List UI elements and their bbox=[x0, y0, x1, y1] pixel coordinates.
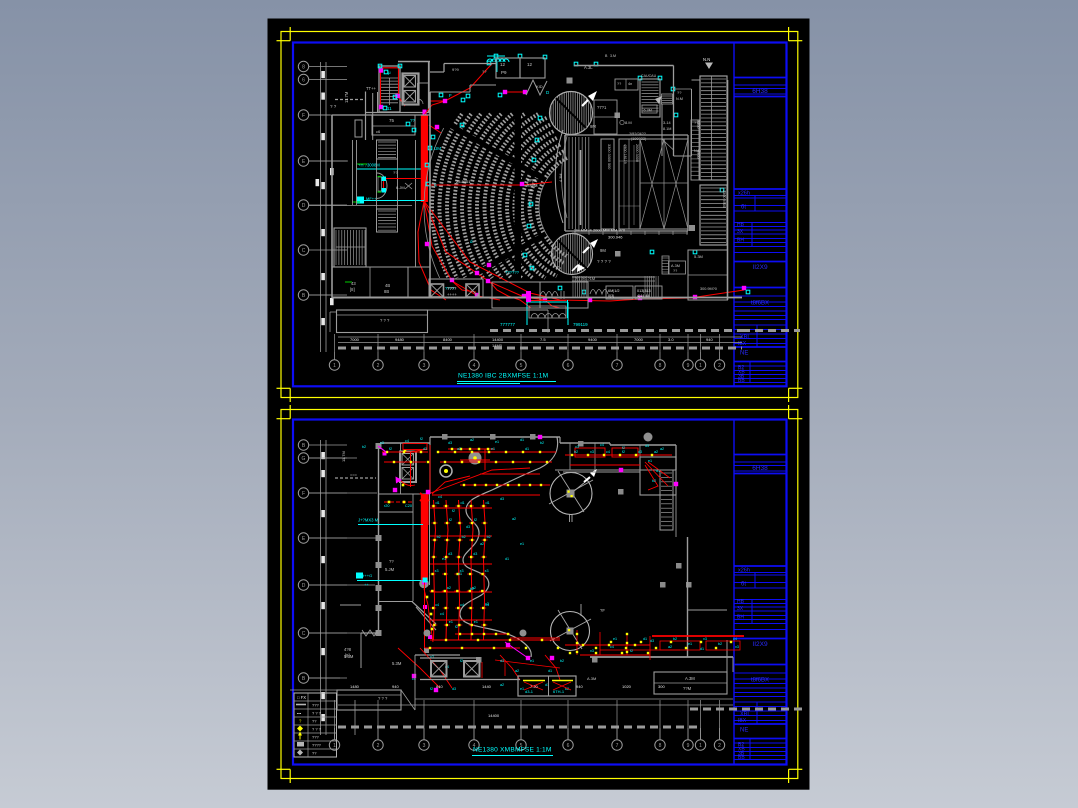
svg-text:4900 18119: 4900 18119 bbox=[623, 144, 627, 164]
svg-text:CAUCAU: CAUCAU bbox=[641, 74, 657, 78]
svg-text:5.3M: 5.3M bbox=[392, 661, 402, 666]
svg-text:a2: a2 bbox=[500, 683, 504, 687]
svg-text:t8f6BX: t8f6BX bbox=[751, 301, 769, 307]
svg-text:d1: d1 bbox=[548, 669, 552, 673]
svg-text:J+?MX3 M: J+?MX3 M bbox=[358, 518, 379, 523]
svg-text:BB: BB bbox=[738, 378, 745, 384]
svg-text:##: ## bbox=[528, 188, 533, 193]
svg-text:5.3M: 5.3M bbox=[694, 254, 703, 259]
svg-text:? ? ? ?.?1M: ? ? ? ?.?1M bbox=[575, 277, 595, 281]
svg-text:b2: b2 bbox=[652, 479, 656, 483]
svg-text:μ: μ bbox=[388, 70, 391, 75]
svg-text:f2: f2 bbox=[622, 446, 625, 450]
svg-text:b2: b2 bbox=[462, 535, 466, 539]
svg-text:d3-1: d3-1 bbox=[525, 689, 534, 694]
svg-text:x26h: x26h bbox=[738, 568, 750, 574]
svg-text:d3: d3 bbox=[500, 497, 504, 501]
svg-text:14400: 14400 bbox=[488, 713, 500, 718]
svg-text:9: 9 bbox=[687, 363, 690, 369]
svg-text:????: ???? bbox=[447, 286, 457, 291]
svg-text:BB: BB bbox=[738, 755, 745, 761]
svg-text:d3: d3 bbox=[448, 552, 452, 556]
svg-text:x3: x3 bbox=[590, 649, 594, 653]
svg-text:1: 1 bbox=[333, 743, 336, 749]
svg-text:A.3M: A.3M bbox=[587, 676, 596, 681]
svg-text:C: C bbox=[302, 248, 306, 254]
svg-text:c4: c4 bbox=[460, 603, 464, 607]
svg-text:5.3M: 5.3M bbox=[344, 654, 354, 659]
svg-text:9: 9 bbox=[687, 743, 690, 749]
svg-text:c4: c4 bbox=[435, 603, 439, 607]
svg-text:e1: e1 bbox=[442, 557, 446, 561]
svg-text:300: 300 bbox=[658, 684, 665, 689]
svg-text:3300 3300 500: 3300 3300 500 bbox=[607, 144, 611, 169]
svg-text:6H38: 6H38 bbox=[752, 88, 768, 95]
svg-text:F: F bbox=[302, 491, 305, 497]
svg-text:IBX: IBX bbox=[738, 718, 747, 724]
svg-text:f2: f2 bbox=[452, 509, 455, 513]
svg-text:9400: 9400 bbox=[588, 337, 598, 342]
svg-text:4.3M: 4.3M bbox=[559, 174, 563, 182]
svg-text:2: 2 bbox=[377, 743, 380, 749]
svg-text:b2: b2 bbox=[574, 450, 578, 454]
svg-text:x3: x3 bbox=[380, 441, 384, 445]
svg-text:6TH-1: 6TH-1 bbox=[553, 689, 565, 694]
svg-text:75: 75 bbox=[389, 118, 395, 123]
svg-text:e1: e1 bbox=[688, 642, 692, 646]
svg-text:6: 6 bbox=[302, 78, 305, 84]
svg-text:G: G bbox=[302, 456, 306, 462]
svg-text:????: ???? bbox=[312, 743, 322, 748]
svg-text:d3: d3 bbox=[638, 450, 642, 454]
svg-text:6: 6 bbox=[567, 743, 570, 749]
svg-text:F: F bbox=[302, 113, 305, 119]
svg-text:f2: f2 bbox=[455, 625, 458, 629]
svg-text:4|44 44: 4|44 44 bbox=[637, 294, 650, 298]
svg-text:e1: e1 bbox=[613, 637, 617, 641]
svg-text:d3: d3 bbox=[452, 687, 456, 691]
svg-text:? ? ?: ? ? ? bbox=[312, 711, 322, 716]
svg-text:d3: d3 bbox=[645, 444, 649, 448]
svg-text:6H38: 6H38 bbox=[752, 465, 768, 472]
svg-text:e1: e1 bbox=[474, 620, 478, 624]
svg-text:d1: d1 bbox=[436, 501, 440, 505]
svg-text:a2: a2 bbox=[512, 517, 516, 521]
svg-text:300.9M?0: 300.9M?0 bbox=[700, 287, 717, 291]
svg-text:1480: 1480 bbox=[350, 684, 360, 689]
svg-text:2: 2 bbox=[718, 743, 721, 749]
svg-text:A.3L: A.3L bbox=[584, 65, 593, 70]
svg-text:??????: ?????? bbox=[505, 270, 520, 275]
svg-text:NE1380 IBC 2BXMFSE 1:1M: NE1380 IBC 2BXMFSE 1:1M bbox=[458, 373, 548, 380]
svg-text:3: 3 bbox=[423, 363, 426, 369]
svg-text:f2: f2 bbox=[430, 687, 433, 691]
svg-text:? ?: ? ? bbox=[330, 104, 337, 109]
svg-text:d1: d1 bbox=[656, 469, 660, 473]
svg-text:e1: e1 bbox=[520, 542, 524, 546]
svg-text:d3: d3 bbox=[466, 525, 470, 529]
svg-text:3: 3 bbox=[423, 743, 426, 749]
svg-text:2: 2 bbox=[377, 363, 380, 369]
svg-text:A.3M: A.3M bbox=[671, 264, 680, 268]
svg-text:4?8: 4?8 bbox=[344, 647, 352, 652]
svg-text:D: D bbox=[302, 583, 306, 589]
svg-text:b2: b2 bbox=[470, 587, 474, 591]
svg-text:HB: HB bbox=[737, 599, 745, 605]
svg-text:C: C bbox=[302, 631, 306, 637]
svg-text:a2: a2 bbox=[515, 669, 519, 673]
svg-text:3-14: 3-14 bbox=[663, 121, 671, 125]
svg-text:b2: b2 bbox=[437, 535, 441, 539]
svg-text:6t: 6t bbox=[741, 582, 746, 588]
svg-text:7: 7 bbox=[616, 363, 619, 369]
svg-text:? ? ? ?: ? ? ? ? bbox=[597, 259, 611, 264]
svg-text:8: 8 bbox=[302, 65, 305, 71]
svg-text:1: 1 bbox=[333, 363, 336, 369]
svg-text:14M0: 14M0 bbox=[492, 343, 503, 348]
svg-text:HB: HB bbox=[737, 222, 745, 228]
svg-text:e1: e1 bbox=[648, 459, 652, 463]
svg-text:23.8001: 23.8001 bbox=[456, 179, 471, 184]
svg-text:===: === bbox=[350, 472, 358, 477]
svg-text:1: 1 bbox=[699, 363, 702, 369]
svg-text:d1: d1 bbox=[520, 438, 524, 442]
svg-text:? ? ?: ? ? ? bbox=[380, 318, 390, 323]
svg-text:t8f6BX: t8f6BX bbox=[751, 678, 769, 684]
svg-text:9M: 9M bbox=[600, 248, 606, 253]
svg-text:12: 12 bbox=[500, 62, 506, 67]
svg-text:43: 43 bbox=[351, 281, 356, 286]
svg-text:f2: f2 bbox=[389, 447, 392, 451]
svg-text:b2: b2 bbox=[673, 637, 677, 641]
svg-text:d1: d1 bbox=[458, 572, 462, 576]
svg-text:6: 6 bbox=[567, 363, 570, 369]
svg-text:x3: x3 bbox=[575, 445, 579, 449]
svg-text:0|3|: 0|3| bbox=[608, 294, 614, 298]
svg-text:d1: d1 bbox=[486, 501, 490, 505]
svg-text:3.M: 3.M bbox=[610, 54, 616, 58]
svg-text:d1: d1 bbox=[643, 637, 647, 641]
svg-text:x3: x3 bbox=[485, 569, 489, 573]
svg-text:P9: P9 bbox=[501, 70, 507, 75]
svg-text:9M: 9M bbox=[590, 124, 596, 129]
svg-text:d3: d3 bbox=[448, 441, 452, 445]
svg-text:8B: 8B bbox=[384, 289, 389, 294]
svg-text:7.20: 7.20 bbox=[530, 684, 539, 689]
svg-text:14400: 14400 bbox=[492, 337, 504, 342]
svg-text:4B: 4B bbox=[385, 283, 390, 288]
svg-text:??M: ??M bbox=[683, 686, 692, 691]
svg-text:e1: e1 bbox=[495, 440, 499, 444]
svg-text:940: 940 bbox=[706, 337, 713, 342]
svg-text:1440: 1440 bbox=[482, 684, 492, 689]
svg-text:799119: 799119 bbox=[573, 322, 588, 327]
svg-text:3300 4900: 3300 4900 bbox=[722, 190, 726, 208]
svg-text:5.JM: 5.JM bbox=[385, 567, 395, 572]
svg-text:6t: 6t bbox=[741, 205, 746, 211]
svg-text:? ? ?: ? ? ? bbox=[312, 727, 322, 732]
svg-text:??: ?? bbox=[677, 90, 682, 95]
svg-text:d3: d3 bbox=[500, 659, 504, 663]
svg-text:3X: 3X bbox=[737, 229, 744, 235]
svg-text:940: 940 bbox=[576, 684, 583, 689]
svg-text:d3: d3 bbox=[650, 639, 654, 643]
svg-text:F: F bbox=[449, 93, 452, 98]
svg-text:12: 12 bbox=[527, 62, 533, 67]
svg-text:300.946: 300.946 bbox=[608, 235, 623, 240]
svg-text:7: 7 bbox=[616, 743, 619, 749]
svg-text:c4: c4 bbox=[438, 495, 442, 499]
svg-text:6.3M: 6.3M bbox=[644, 109, 652, 113]
svg-text:11.7M: 11.7M bbox=[344, 91, 349, 103]
svg-text:f2: f2 bbox=[420, 437, 423, 441]
svg-text:8: 8 bbox=[659, 743, 662, 749]
svg-text:c4: c4 bbox=[610, 645, 614, 649]
svg-text:c4: c4 bbox=[405, 439, 409, 443]
svg-text:C20: C20 bbox=[405, 504, 412, 508]
svg-text:IBX: IBX bbox=[738, 341, 747, 347]
svg-text:II2X9: II2X9 bbox=[752, 264, 768, 271]
svg-text:? ? ?: ? ? ? bbox=[378, 696, 388, 701]
svg-text:8.1M: 8.1M bbox=[663, 127, 671, 131]
svg-text:9480: 9480 bbox=[395, 337, 405, 342]
svg-text:f2: f2 bbox=[474, 518, 477, 522]
svg-text:NE: NE bbox=[740, 351, 748, 357]
svg-text:N.N: N.N bbox=[703, 57, 710, 62]
svg-text:11.7M: 11.7M bbox=[341, 451, 346, 462]
svg-text:4900: 4900 bbox=[696, 150, 700, 158]
svg-text:c4: c4 bbox=[606, 450, 610, 454]
svg-text:4n: 4n bbox=[628, 82, 632, 86]
svg-text:4: 4 bbox=[473, 363, 476, 369]
svg-text:1: 1 bbox=[699, 743, 702, 749]
svg-text:8: 8 bbox=[659, 363, 662, 369]
svg-text:KID: KID bbox=[536, 84, 543, 89]
svg-text:d3: d3 bbox=[473, 552, 477, 556]
svg-text:b2: b2 bbox=[362, 445, 366, 449]
svg-text:?F: ?F bbox=[600, 608, 605, 613]
svg-text:c4: c4 bbox=[440, 612, 444, 616]
svg-text:x26h: x26h bbox=[738, 191, 750, 197]
svg-text:b2: b2 bbox=[560, 659, 564, 663]
svg-text:NE1380 XMBMFSE 1:1M: NE1380 XMBMFSE 1:1M bbox=[473, 747, 552, 754]
svg-text:??: ?? bbox=[312, 751, 317, 756]
svg-text:940: 940 bbox=[392, 684, 399, 689]
svg-text:[8]: [8] bbox=[350, 287, 355, 292]
svg-text:d1: d1 bbox=[505, 557, 509, 561]
svg-text:□ FX: □ FX bbox=[297, 695, 306, 700]
svg-text:2: 2 bbox=[718, 363, 721, 369]
svg-text:???: ??? bbox=[312, 735, 319, 740]
svg-text:f2: f2 bbox=[460, 659, 463, 663]
svg-text:x3: x3 bbox=[590, 450, 594, 454]
svg-text:11: 11 bbox=[387, 106, 392, 111]
svg-text:6.JM: 6.JM bbox=[396, 185, 405, 190]
svg-text:013|313: 013|313 bbox=[637, 289, 651, 293]
svg-text:a2: a2 bbox=[447, 586, 451, 590]
svg-text:??: ?? bbox=[393, 170, 398, 175]
svg-text:r20: r20 bbox=[384, 504, 390, 508]
svg-text:BH: BH bbox=[737, 615, 744, 621]
svg-text:3.0: 3.0 bbox=[668, 337, 674, 342]
svg-text:a2: a2 bbox=[668, 645, 672, 649]
svg-text:a2: a2 bbox=[480, 542, 484, 546]
svg-text:x3: x3 bbox=[485, 602, 489, 606]
svg-text:840: 840 bbox=[436, 684, 443, 689]
svg-text:d1: d1 bbox=[461, 501, 465, 505]
svg-text:d3: d3 bbox=[423, 447, 427, 451]
svg-text:a2: a2 bbox=[654, 450, 658, 454]
svg-text:c4: c4 bbox=[733, 637, 737, 641]
svg-text:e1: e1 bbox=[491, 447, 495, 451]
svg-text:a2: a2 bbox=[660, 447, 664, 451]
svg-text:7000: 7000 bbox=[350, 337, 360, 342]
svg-text:e1: e1 bbox=[449, 620, 453, 624]
svg-text:D: D bbox=[302, 203, 306, 209]
svg-text:a2: a2 bbox=[470, 438, 474, 442]
svg-text:XBL: XBL bbox=[740, 712, 750, 718]
svg-text:f2: f2 bbox=[630, 649, 633, 653]
svg-text:7.5: 7.5 bbox=[540, 337, 546, 342]
svg-text:??: ?? bbox=[673, 269, 677, 273]
svg-text:d1: d1 bbox=[525, 447, 529, 451]
svg-text:c4: c4 bbox=[600, 443, 604, 447]
svg-text:7000: 7000 bbox=[634, 337, 644, 342]
svg-text:x3: x3 bbox=[735, 645, 739, 649]
svg-text:++: ++ bbox=[364, 582, 369, 587]
svg-text:777777: 777777 bbox=[500, 322, 516, 327]
svg-text:MF++: MF++ bbox=[366, 196, 377, 201]
svg-text:•••: ••• bbox=[297, 711, 302, 716]
svg-text:NE: NE bbox=[740, 728, 748, 734]
svg-text:??: ?? bbox=[312, 719, 317, 724]
svg-text:b2: b2 bbox=[487, 535, 491, 539]
svg-text:9?9: 9?9 bbox=[452, 67, 459, 72]
svg-text:8.M: 8.M bbox=[625, 120, 632, 125]
svg-text:??: ?? bbox=[410, 118, 416, 123]
svg-text:b2: b2 bbox=[540, 441, 544, 445]
svg-text:???: ??? bbox=[312, 703, 319, 708]
svg-text:5: 5 bbox=[520, 363, 523, 369]
svg-text:8400: 8400 bbox=[443, 337, 453, 342]
svg-text:d1: d1 bbox=[700, 647, 704, 651]
svg-text:e1: e1 bbox=[530, 659, 534, 663]
svg-text:N.M: N.M bbox=[676, 97, 683, 101]
svg-text:?7?1: ?7?1 bbox=[597, 105, 607, 110]
svg-text:e1: e1 bbox=[520, 687, 524, 691]
svg-text:??: ?? bbox=[482, 69, 487, 74]
svg-text:II2X9: II2X9 bbox=[752, 641, 768, 648]
svg-text:XBL: XBL bbox=[740, 335, 750, 341]
svg-text:BH: BH bbox=[737, 238, 744, 244]
svg-text:2M MM?4 2000 MM MM 970: 2M MM?4 2000 MM MM 970 bbox=[574, 228, 626, 233]
svg-text:f2: f2 bbox=[449, 518, 452, 522]
svg-text:??: ?? bbox=[389, 559, 394, 564]
svg-text:6M|1/2: 6M|1/2 bbox=[608, 289, 620, 293]
svg-text:A.3M: A.3M bbox=[685, 676, 695, 681]
svg-text:3X: 3X bbox=[737, 606, 744, 612]
svg-text:1020: 1020 bbox=[622, 684, 632, 689]
svg-text:UM: UM bbox=[434, 146, 441, 151]
svg-text:f2: f2 bbox=[622, 450, 625, 454]
svg-text:TT++: TT++ bbox=[366, 86, 377, 91]
svg-text:x3: x3 bbox=[435, 569, 439, 573]
svg-text:??: ?? bbox=[617, 82, 621, 86]
svg-text:x3: x3 bbox=[703, 637, 707, 641]
svg-text:a2: a2 bbox=[457, 447, 461, 451]
svg-text:b2: b2 bbox=[718, 642, 722, 646]
svg-text:2000 3300: 2000 3300 bbox=[635, 144, 639, 162]
svg-text:3300: 3300 bbox=[696, 120, 700, 128]
svg-text:++++: ++++ bbox=[447, 292, 457, 297]
